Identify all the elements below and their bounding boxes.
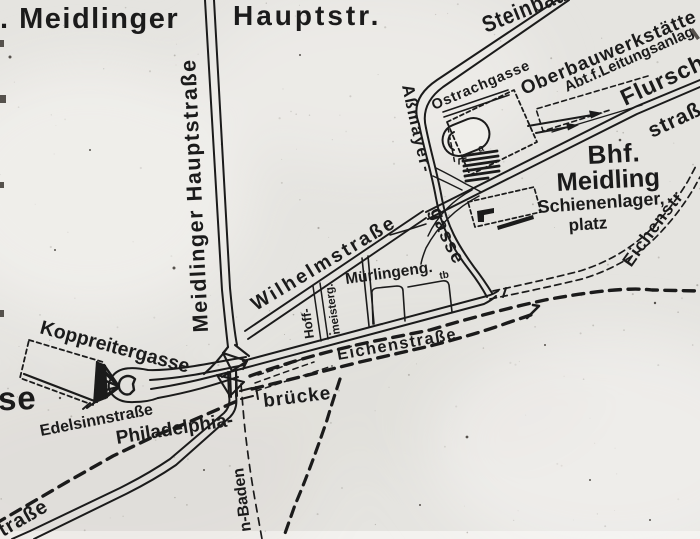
svg-text:. Meidlinger: . Meidlinger xyxy=(0,3,179,35)
svg-text:platz: platz xyxy=(568,213,608,235)
svg-text:tb: tb xyxy=(439,269,450,281)
svg-text:sse: sse xyxy=(0,379,37,418)
svg-text:Hauptstr.: Hauptstr. xyxy=(233,0,381,31)
